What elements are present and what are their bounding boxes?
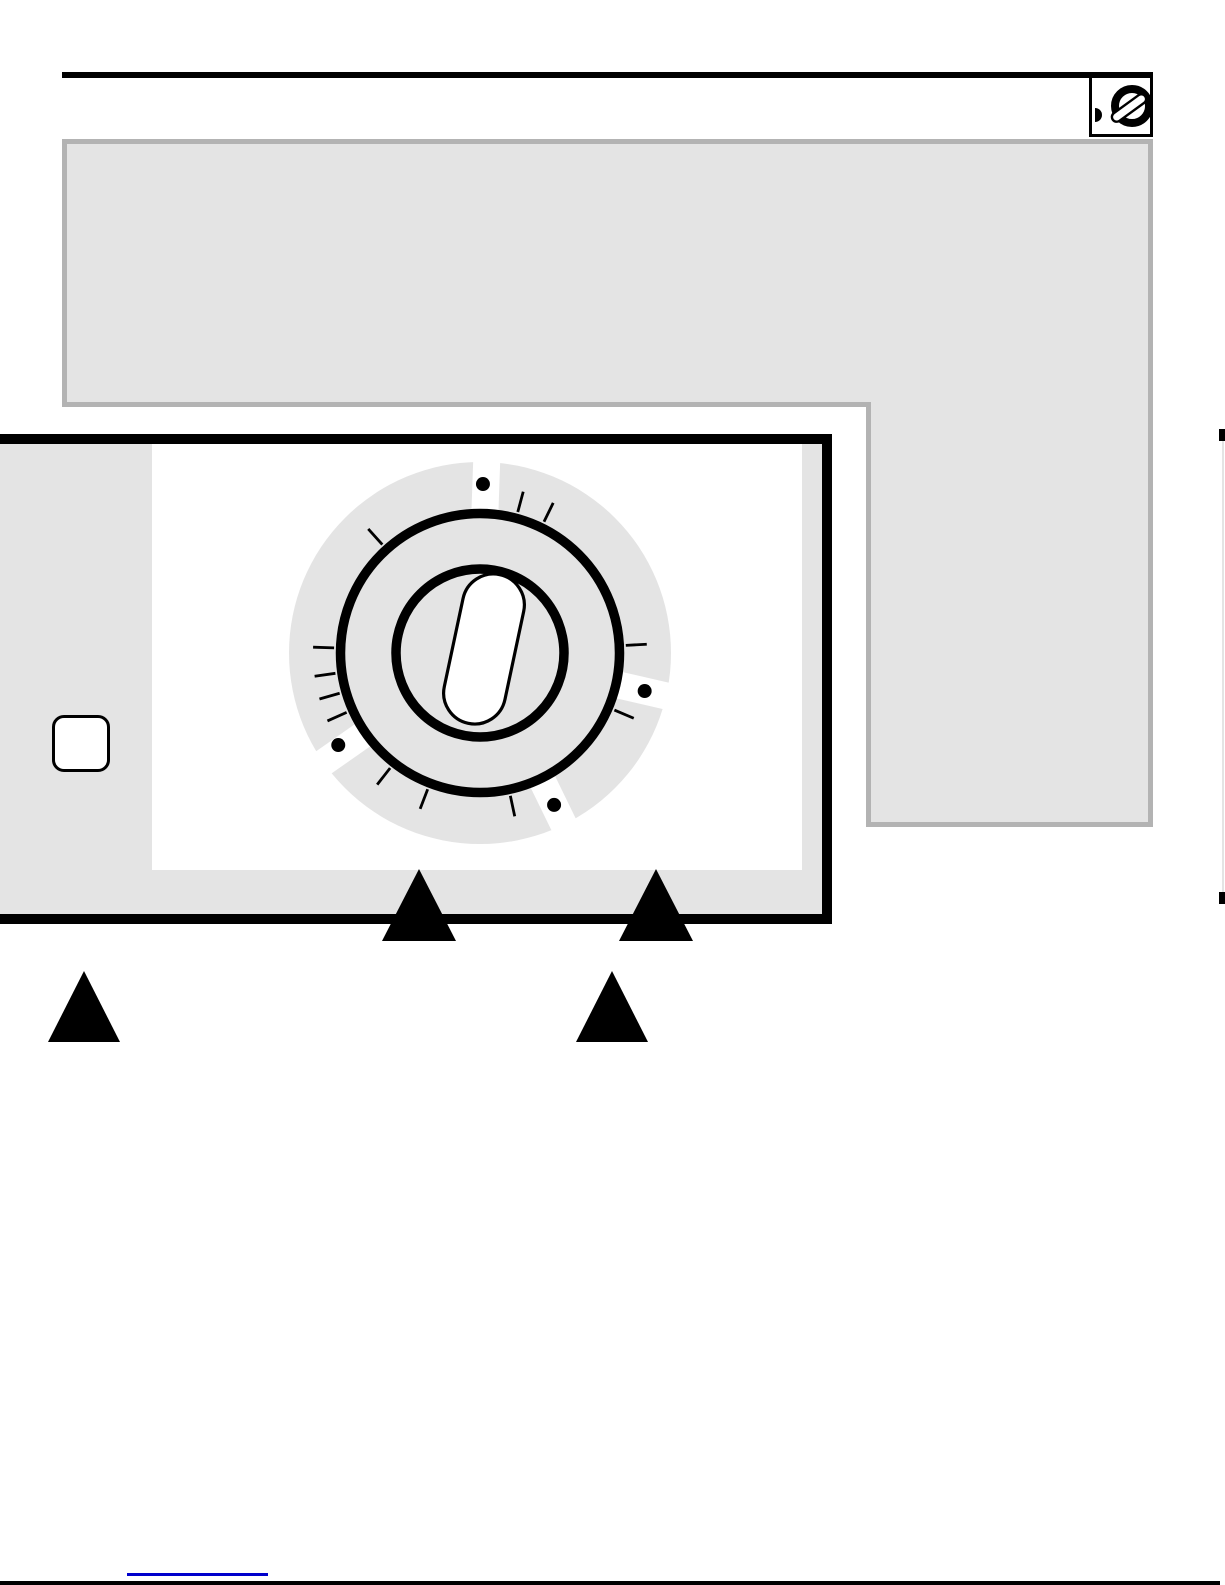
header-rule bbox=[62, 72, 1153, 78]
page-edge-marker-cap bbox=[1219, 429, 1225, 441]
manual-page bbox=[0, 0, 1225, 1585]
dial-position-dot bbox=[331, 738, 345, 752]
dial-tick bbox=[313, 647, 334, 648]
page-bottom-edge bbox=[0, 1581, 1220, 1585]
pointer-triangle bbox=[576, 971, 648, 1042]
section-icon-box bbox=[1089, 75, 1153, 137]
dial-tick bbox=[626, 644, 647, 645]
control-panel-diagram bbox=[0, 434, 832, 924]
timer-dial bbox=[280, 453, 700, 853]
hyperlink-underline[interactable] bbox=[127, 1573, 268, 1576]
rotary-knob-icon bbox=[1092, 78, 1150, 134]
page-edge-marker-cap bbox=[1219, 892, 1225, 904]
dial-position-dot bbox=[547, 798, 561, 812]
page-edge-marker-line bbox=[1222, 434, 1224, 903]
dial-position-dot bbox=[638, 684, 652, 698]
panel-button bbox=[52, 715, 110, 772]
pointer-triangle bbox=[48, 971, 120, 1042]
dial-position-dot bbox=[476, 477, 490, 491]
